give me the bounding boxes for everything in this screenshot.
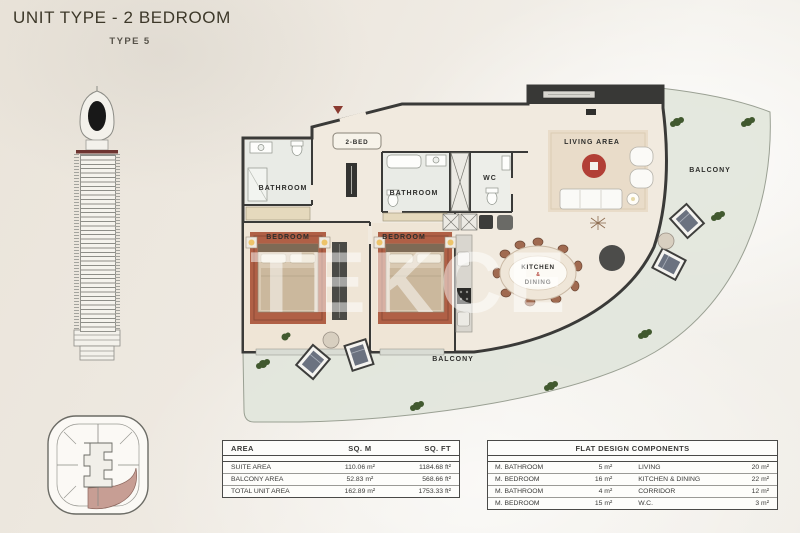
page-title: UNIT TYPE - 2 BEDROOM bbox=[13, 8, 231, 28]
component-name: M. BEDROOM bbox=[488, 476, 578, 483]
component-value: 12 m² bbox=[719, 488, 777, 495]
room-label-bathroom1: BATHROOM bbox=[259, 185, 308, 192]
area-row-name: BALCONY AREA bbox=[223, 476, 327, 483]
component-value: 22 m² bbox=[719, 476, 777, 483]
component-name: KITCHEN & DINING bbox=[612, 476, 719, 483]
components-table: FLAT DESIGN COMPONENTS M. BATHROOM 5 m² … bbox=[487, 440, 778, 510]
entry-arrow bbox=[333, 106, 343, 114]
component-name: M. BATHROOM bbox=[488, 464, 578, 471]
table-row: TOTAL UNIT AREA 162.89 m² 1753.33 ft² bbox=[223, 486, 459, 497]
table-row: M. BEDROOM 15 m² W.C. 3 m² bbox=[488, 498, 777, 509]
table-row: M. BATHROOM 4 m² CORRIDOR 12 m² bbox=[488, 486, 777, 498]
tower-level-band bbox=[76, 150, 118, 154]
tower-body bbox=[80, 154, 116, 332]
room-label-living: LIVING AREA bbox=[564, 139, 620, 146]
tower-ticks-left bbox=[74, 154, 79, 330]
room-label-bedroom1: BEDROOM bbox=[266, 234, 310, 241]
table-row: SUITE AREA 110.06 m² 1184.68 ft² bbox=[223, 462, 459, 474]
component-value: 15 m² bbox=[578, 500, 613, 507]
component-name: LIVING bbox=[612, 464, 719, 471]
component-value: 20 m² bbox=[719, 464, 777, 471]
area-row-sqft: 568.66 ft² bbox=[393, 476, 459, 483]
room-label-bedroom2: BEDROOM bbox=[382, 234, 426, 241]
area-table: AREA SQ. M SQ. FT SUITE AREA 110.06 m² 1… bbox=[222, 440, 460, 498]
area-header-area: AREA bbox=[223, 444, 327, 453]
dining-label-amp: & bbox=[536, 272, 540, 278]
component-value: 3 m² bbox=[719, 500, 777, 507]
component-name: M. BATHROOM bbox=[488, 488, 578, 495]
component-value: 4 m² bbox=[578, 488, 613, 495]
area-row-sqm: 110.06 m² bbox=[327, 464, 393, 471]
balcony-label-right: BALCONY bbox=[689, 167, 731, 174]
page-subtitle: TYPE 5 bbox=[30, 36, 230, 47]
table-row: BALCONY AREA 52.83 m² 568.66 ft² bbox=[223, 474, 459, 486]
unit-badge-label: 2-BED bbox=[346, 139, 369, 146]
table-row: M. BEDROOM 16 m² KITCHEN & DINING 22 m² bbox=[488, 474, 777, 486]
dining-label-dining: DINING bbox=[525, 279, 552, 286]
table-row: M. BATHROOM 5 m² LIVING 20 m² bbox=[488, 462, 777, 474]
area-header-sqm: SQ. M bbox=[327, 444, 393, 453]
room-label-wc: WC bbox=[483, 175, 497, 182]
component-value: 5 m² bbox=[578, 464, 613, 471]
component-name: M. BEDROOM bbox=[488, 500, 578, 507]
round-table bbox=[599, 245, 625, 271]
area-row-sqft: 1184.68 ft² bbox=[393, 464, 459, 471]
area-header-sqft: SQ. FT bbox=[393, 444, 459, 453]
bedroom2-furniture bbox=[374, 232, 456, 324]
components-table-title: FLAT DESIGN COMPONENTS bbox=[488, 444, 777, 453]
components-table-header: FLAT DESIGN COMPONENTS bbox=[488, 441, 777, 456]
component-name: W.C. bbox=[612, 500, 719, 507]
tower-ticks-right bbox=[115, 154, 120, 330]
component-name: CORRIDOR bbox=[612, 488, 719, 495]
tower-head bbox=[88, 101, 106, 131]
area-row-sqm: 162.89 m² bbox=[327, 488, 393, 495]
area-table-header: AREA SQ. M SQ. FT bbox=[223, 441, 459, 456]
balcony-label-bottom: BALCONY bbox=[432, 356, 474, 363]
area-row-sqm: 52.83 m² bbox=[327, 476, 393, 483]
room-label-bathroom2: BATHROOM bbox=[390, 190, 439, 197]
key-plan bbox=[48, 416, 148, 514]
area-row-name: TOTAL UNIT AREA bbox=[223, 488, 327, 495]
component-value: 16 m² bbox=[578, 476, 613, 483]
area-row-name: SUITE AREA bbox=[223, 464, 327, 471]
dining-label-kitchen: KITCHEN bbox=[521, 264, 555, 271]
area-row-sqft: 1753.33 ft² bbox=[393, 488, 459, 495]
kitchen-counter bbox=[456, 235, 472, 332]
